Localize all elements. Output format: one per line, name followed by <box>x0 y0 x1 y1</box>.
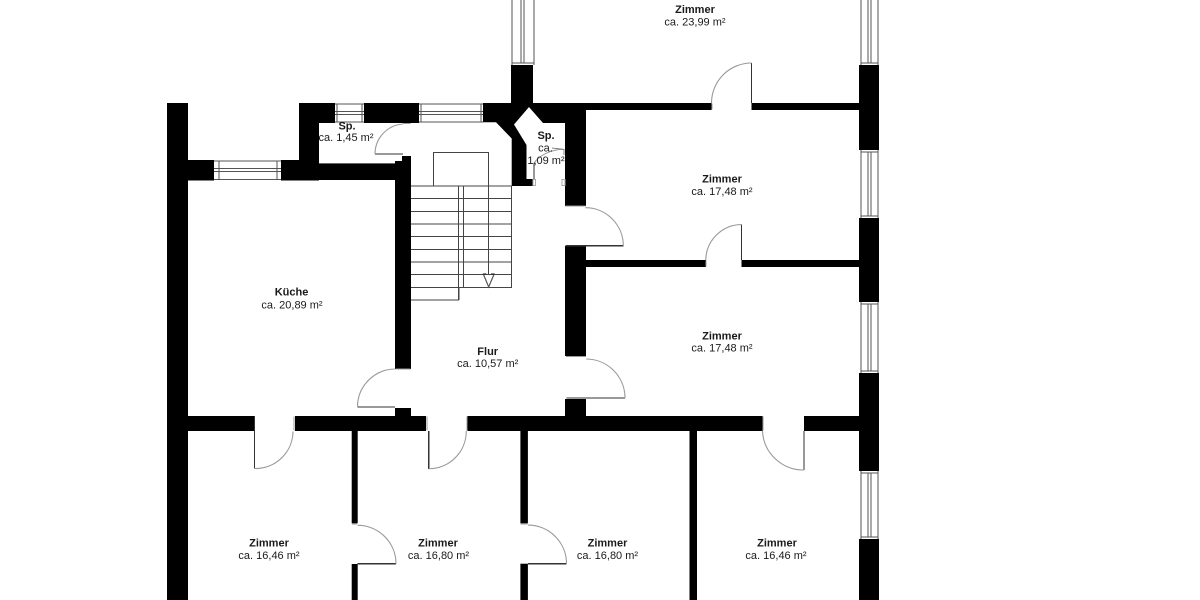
svg-text:Flur: Flur <box>477 346 498 358</box>
svg-text:Zimmer: Zimmer <box>675 4 715 16</box>
svg-text:Zimmer: Zimmer <box>418 538 458 550</box>
svg-text:ca. 23,99 m²: ca. 23,99 m² <box>664 17 725 29</box>
svg-text:ca. 16,80 m²: ca. 16,80 m² <box>408 550 469 562</box>
svg-text:Zimmer: Zimmer <box>249 538 289 550</box>
svg-text:Sp.: Sp. <box>537 130 554 142</box>
svg-text:Zimmer: Zimmer <box>757 538 797 550</box>
svg-text:ca.: ca. <box>538 143 553 155</box>
svg-text:Zimmer: Zimmer <box>702 331 742 343</box>
svg-text:ca. 1,45 m²: ca. 1,45 m² <box>318 132 373 144</box>
svg-text:ca. 17,48 m²: ca. 17,48 m² <box>691 343 752 355</box>
svg-text:ca. 16,46 m²: ca. 16,46 m² <box>238 550 299 562</box>
svg-text:Zimmer: Zimmer <box>702 174 742 186</box>
svg-text:Küche: Küche <box>275 287 309 299</box>
svg-text:ca. 16,46 m²: ca. 16,46 m² <box>745 550 806 562</box>
svg-text:ca. 17,48 m²: ca. 17,48 m² <box>691 186 752 198</box>
svg-text:Zimmer: Zimmer <box>588 538 628 550</box>
svg-text:Sp.: Sp. <box>338 121 355 133</box>
svg-text:ca. 10,57 m²: ca. 10,57 m² <box>457 358 518 370</box>
svg-text:ca. 16,80 m²: ca. 16,80 m² <box>577 550 638 562</box>
svg-text:1,09 m²: 1,09 m² <box>527 155 565 167</box>
svg-text:ca. 20,89 m²: ca. 20,89 m² <box>261 300 322 312</box>
